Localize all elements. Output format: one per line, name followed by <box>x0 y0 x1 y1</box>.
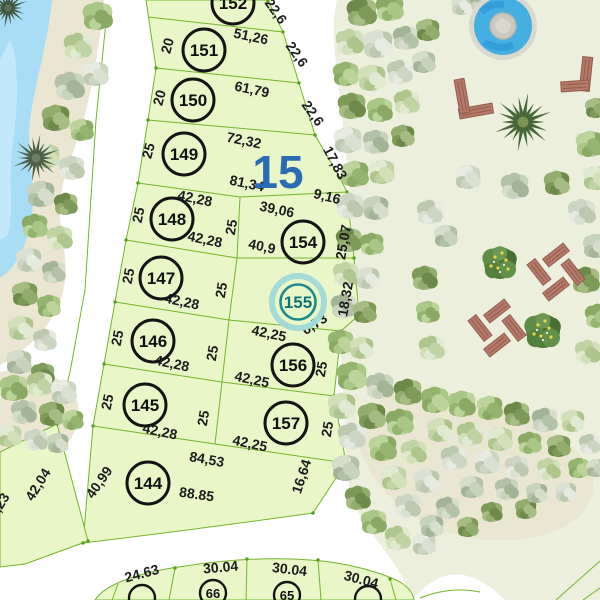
tree <box>386 409 414 435</box>
tree <box>47 433 69 453</box>
tree <box>586 459 600 477</box>
tree <box>328 393 356 419</box>
tree <box>487 427 513 451</box>
plot-number: 156 <box>279 356 307 375</box>
tree <box>51 380 77 404</box>
tree <box>393 26 419 50</box>
plot-number: 149 <box>170 145 198 164</box>
tree <box>11 400 37 424</box>
tree <box>347 0 377 26</box>
tree <box>27 181 55 207</box>
tree <box>6 350 32 374</box>
tree <box>501 173 529 199</box>
tree <box>54 193 78 215</box>
tree <box>369 435 397 461</box>
tree <box>416 19 440 41</box>
tree <box>0 425 22 447</box>
plot-number: 65 <box>280 588 294 600</box>
flower-bush-icon <box>524 313 561 348</box>
tree <box>412 266 438 290</box>
tree <box>575 340 600 364</box>
pool-island-center <box>496 19 511 34</box>
tree <box>544 171 570 195</box>
plot-number: 151 <box>190 41 218 60</box>
plot-number: 147 <box>147 269 175 288</box>
tree <box>12 282 38 306</box>
tree <box>568 199 596 225</box>
plot-number: 148 <box>158 210 186 229</box>
plot-number: 152 <box>219 0 247 13</box>
tree <box>585 98 600 118</box>
tree <box>547 435 571 457</box>
bench-icon <box>561 80 590 92</box>
tree <box>328 330 354 354</box>
tree <box>436 497 460 519</box>
tree <box>387 60 413 84</box>
plot-number: 146 <box>139 332 167 351</box>
dimension-label: 25 <box>194 409 212 427</box>
tree <box>394 90 420 114</box>
tree <box>526 483 548 503</box>
site-plan-map: 22,6 51,26 20 22,6 61,79 20 22,6 72,32 2… <box>0 0 600 600</box>
tree <box>385 526 411 550</box>
tree <box>337 362 367 390</box>
tree <box>420 515 444 537</box>
tree <box>0 375 28 401</box>
tree <box>33 329 57 351</box>
tree <box>332 455 360 481</box>
tree <box>421 387 449 413</box>
tree <box>8 316 34 340</box>
tree <box>532 408 558 432</box>
tree <box>363 196 389 220</box>
tree <box>338 93 366 119</box>
tree <box>477 396 503 420</box>
tree <box>518 432 542 454</box>
plot-marker-155-selected[interactable]: 155 <box>272 276 324 328</box>
tree <box>361 510 387 534</box>
tree <box>583 166 600 190</box>
tree <box>576 131 600 157</box>
block-number-label: 15 <box>252 146 303 198</box>
tree <box>381 466 407 490</box>
plot-number: 145 <box>131 396 159 415</box>
tree <box>47 226 73 250</box>
tree <box>451 0 473 15</box>
tree <box>62 410 84 430</box>
tree <box>345 486 371 510</box>
plot-number: 155 <box>284 293 312 312</box>
tree <box>59 156 85 180</box>
tree <box>427 418 453 442</box>
tree <box>460 476 484 498</box>
tree <box>555 482 577 502</box>
plot-number: 157 <box>272 414 300 433</box>
tree <box>363 30 393 58</box>
tree <box>416 301 440 323</box>
tree <box>366 373 394 399</box>
map-canvas: 22,6 51,26 20 22,6 61,79 20 22,6 72,32 2… <box>0 0 600 600</box>
tree <box>83 2 113 30</box>
tree <box>568 458 590 478</box>
tree <box>448 391 476 417</box>
tree <box>356 267 380 289</box>
plot-number: 144 <box>134 474 163 493</box>
dimension-label: 25 <box>222 218 240 236</box>
dimension-label: 25 <box>212 281 230 299</box>
tree <box>537 458 561 480</box>
tree <box>70 119 94 141</box>
tree <box>42 105 70 131</box>
tree <box>457 422 483 446</box>
tree <box>579 434 600 454</box>
tree <box>412 51 436 73</box>
tree <box>22 214 48 238</box>
tree <box>417 200 443 224</box>
tree <box>369 160 395 184</box>
tree <box>505 456 529 478</box>
dimension-label: 25 <box>318 420 336 438</box>
plot-number: 154 <box>289 233 318 252</box>
tree <box>457 517 479 537</box>
tree <box>391 125 415 147</box>
tree <box>358 65 386 91</box>
tree <box>394 379 422 405</box>
tree <box>481 502 503 522</box>
tree <box>350 337 374 359</box>
plot-number: 150 <box>179 91 207 110</box>
tree <box>561 410 585 432</box>
tree <box>583 234 600 258</box>
plot-number: 66 <box>206 586 220 600</box>
tree <box>360 233 384 255</box>
tree <box>27 372 53 396</box>
tree <box>83 62 109 86</box>
tree <box>24 429 48 451</box>
dimension-label: 30.04 <box>202 558 239 577</box>
tree <box>358 403 386 429</box>
dimension-label: 25 <box>203 344 221 362</box>
tree <box>495 478 519 500</box>
flower-bush-icon <box>482 246 516 279</box>
tree <box>504 402 530 426</box>
tree <box>395 494 421 518</box>
tree <box>353 301 377 323</box>
tree <box>55 72 85 100</box>
tree <box>419 336 445 360</box>
tree <box>441 446 467 470</box>
tree <box>39 402 65 426</box>
tree <box>414 469 440 493</box>
tree <box>434 225 458 247</box>
tree <box>367 98 393 122</box>
tree <box>455 165 481 189</box>
tree <box>376 0 404 21</box>
tree <box>474 450 500 474</box>
tree <box>401 440 427 464</box>
tree <box>64 33 92 59</box>
tree <box>333 62 359 86</box>
tree <box>336 29 364 55</box>
tree <box>42 261 66 283</box>
tree <box>37 295 61 317</box>
tree <box>16 248 42 272</box>
tree <box>363 130 389 154</box>
